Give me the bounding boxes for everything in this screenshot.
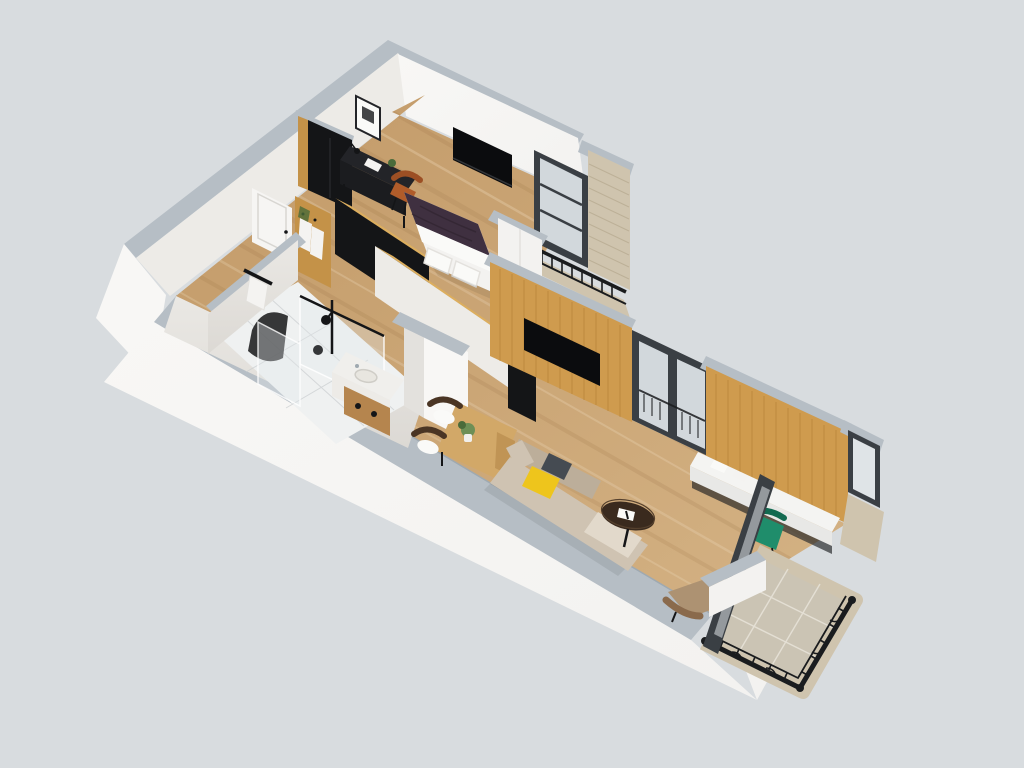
wardrobe-wood-side [298,116,308,190]
desk-plant [388,159,396,167]
cabinet-handle [371,411,377,417]
centerpiece-plant-leaf [458,421,466,429]
vanity-faucet [355,364,359,368]
hanging-robe [298,218,312,252]
centerpiece-vase [464,434,472,442]
cabinet-handle [355,403,361,409]
apartment-3d-floorplan [0,0,1024,768]
hanging-robe [310,226,324,260]
door-handle [284,230,288,234]
coat-hook [314,219,317,222]
shower-stool [313,345,323,355]
french-door-glass-right [677,359,705,449]
french-door-glass-left [639,341,668,432]
apartment-render-stage [0,0,1024,768]
